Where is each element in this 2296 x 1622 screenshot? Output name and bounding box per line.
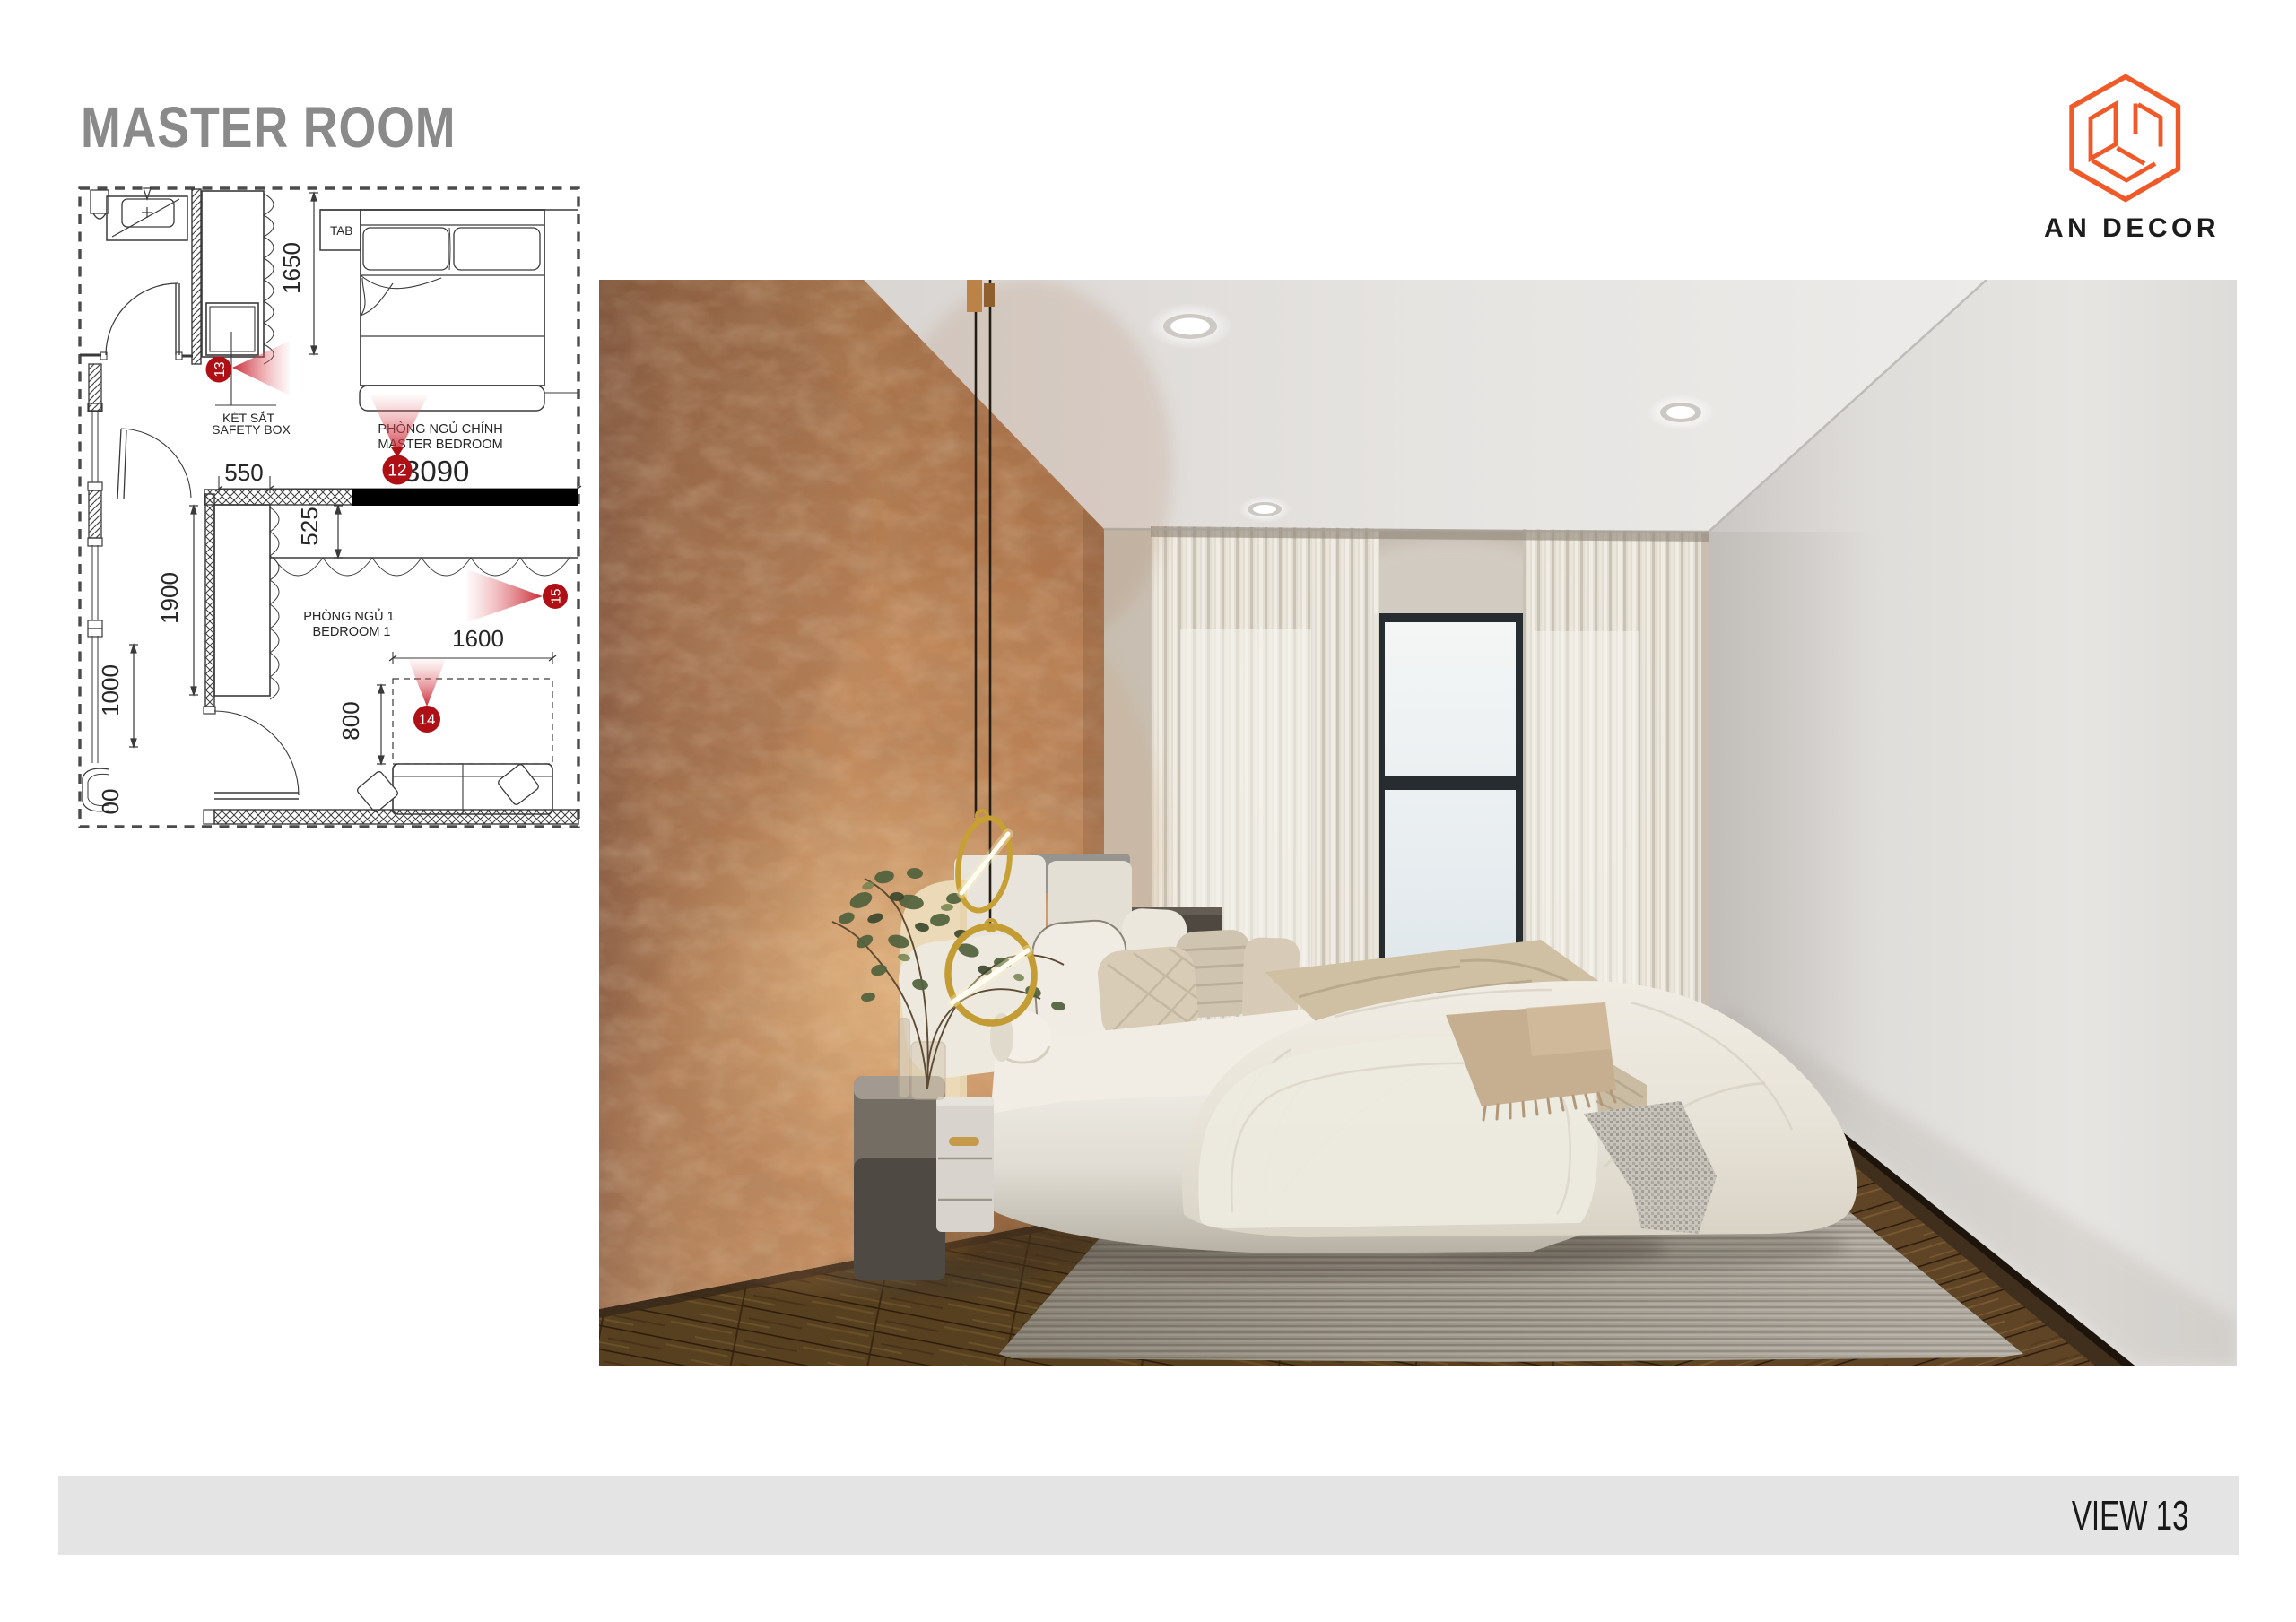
svg-text:1000: 1000 <box>97 664 124 716</box>
svg-text:1600: 1600 <box>452 625 504 652</box>
svg-text:00: 00 <box>97 789 124 815</box>
svg-text:12: 12 <box>387 462 406 481</box>
svg-text:14: 14 <box>419 711 436 728</box>
svg-text:800: 800 <box>337 701 364 740</box>
svg-text:SAFETY BOX: SAFETY BOX <box>212 422 291 437</box>
svg-text:1900: 1900 <box>156 572 183 624</box>
svg-text:PHÒNG NGỦ 1: PHÒNG NGỦ 1 <box>303 608 395 624</box>
svg-text:TAB: TAB <box>330 224 352 238</box>
svg-text:550: 550 <box>224 459 263 486</box>
svg-text:15: 15 <box>549 589 564 604</box>
svg-text:3090: 3090 <box>404 455 469 488</box>
svg-text:BEDROOM 1: BEDROOM 1 <box>312 625 390 639</box>
svg-text:1650: 1650 <box>278 242 305 294</box>
svg-text:525: 525 <box>296 507 323 545</box>
svg-text:13: 13 <box>213 361 228 377</box>
